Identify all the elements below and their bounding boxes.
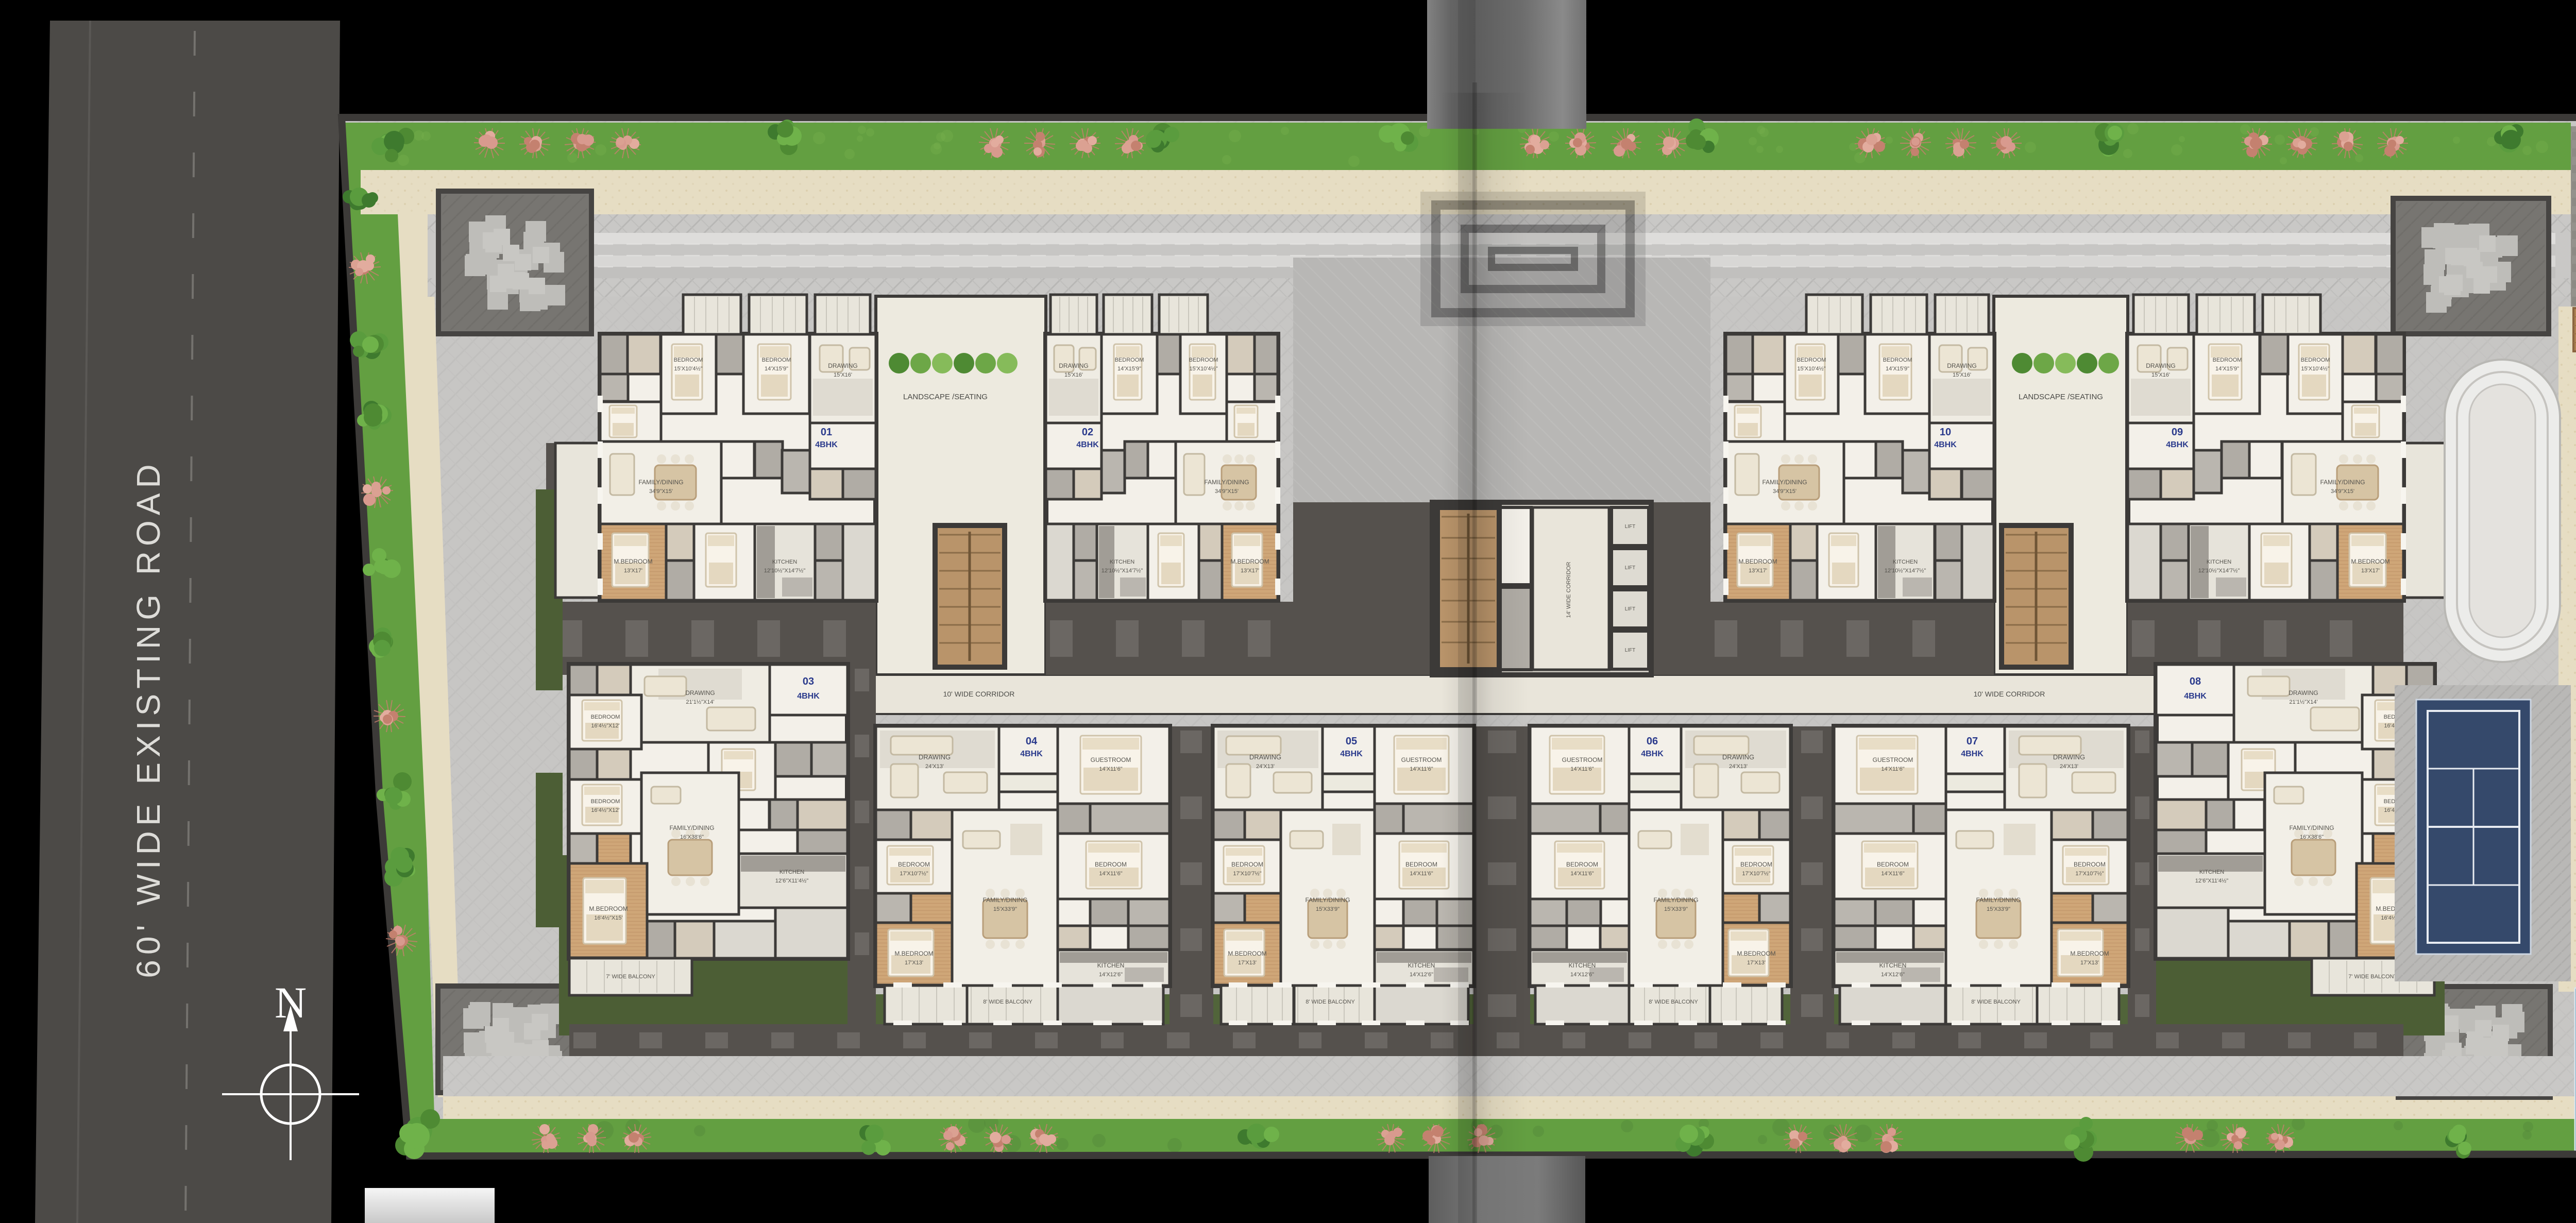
svg-text:17'X10'7½": 17'X10'7½" xyxy=(1742,871,1770,877)
svg-text:15'X33'9": 15'X33'9" xyxy=(993,906,1017,912)
svg-text:FAMILY/DINING: FAMILY/DINING xyxy=(1762,479,1807,486)
svg-text:LIFT: LIFT xyxy=(1625,565,1636,571)
svg-text:KITCHEN: KITCHEN xyxy=(1408,962,1435,969)
svg-text:4BHK: 4BHK xyxy=(815,440,838,449)
svg-text:LANDSCAPE /SEATING: LANDSCAPE /SEATING xyxy=(903,393,988,401)
svg-text:05: 05 xyxy=(1346,736,1357,747)
svg-text:14'X15'9": 14'X15'9" xyxy=(2215,366,2239,372)
svg-text:16'4½"X12': 16'4½"X12' xyxy=(591,807,619,813)
svg-text:14'X11'6": 14'X11'6" xyxy=(1881,871,1904,877)
svg-text:17'X13': 17'X13' xyxy=(2080,960,2099,966)
svg-text:15'X16': 15'X16' xyxy=(2151,372,2170,378)
svg-text:BEDROOM: BEDROOM xyxy=(1189,357,1218,363)
svg-text:15'X33'9": 15'X33'9" xyxy=(1987,906,2010,912)
svg-text:BEDROOM: BEDROOM xyxy=(2074,861,2106,868)
svg-text:BEDROOM: BEDROOM xyxy=(674,357,703,363)
svg-text:DRAWING: DRAWING xyxy=(2289,689,2318,697)
svg-text:BEDROOM: BEDROOM xyxy=(2301,357,2330,363)
svg-text:24'X13': 24'X13' xyxy=(1256,763,1275,770)
svg-text:BEDROOM: BEDROOM xyxy=(898,861,930,868)
svg-text:DRAWING: DRAWING xyxy=(1947,362,1977,369)
svg-text:M.BEDROOM: M.BEDROOM xyxy=(589,905,628,912)
svg-text:KITCHEN: KITCHEN xyxy=(772,559,797,565)
svg-text:14'X12'6": 14'X12'6" xyxy=(1099,972,1123,978)
svg-text:KITCHEN: KITCHEN xyxy=(1569,962,1596,969)
svg-text:15'X10'4½": 15'X10'4½" xyxy=(2301,366,2329,372)
svg-text:14'X15'9": 14'X15'9" xyxy=(1886,366,1909,372)
svg-text:15'X10'4½": 15'X10'4½" xyxy=(674,366,702,372)
svg-text:M.BEDROOM: M.BEDROOM xyxy=(1737,950,1775,957)
svg-text:M.BEDROOM: M.BEDROOM xyxy=(2351,558,2389,565)
svg-text:M.BEDROOM: M.BEDROOM xyxy=(2070,950,2109,957)
svg-text:14'X12'6": 14'X12'6" xyxy=(1570,972,1594,978)
svg-text:M.BEDROOM: M.BEDROOM xyxy=(1738,558,1777,565)
svg-text:14'X15'9": 14'X15'9" xyxy=(1117,366,1141,372)
svg-text:DRAWING: DRAWING xyxy=(919,753,951,761)
svg-text:17'X13': 17'X13' xyxy=(1747,960,1766,966)
svg-text:15'X10'4½": 15'X10'4½" xyxy=(1189,366,1217,372)
svg-text:09: 09 xyxy=(2172,427,2183,438)
svg-text:KITCHEN: KITCHEN xyxy=(1893,559,1918,565)
svg-text:12'10½"X14'7½": 12'10½"X14'7½" xyxy=(1101,568,1143,574)
svg-text:DRAWING: DRAWING xyxy=(1249,753,1281,761)
svg-text:M.BEDROOM: M.BEDROOM xyxy=(894,950,933,957)
svg-text:12'10½"X14'7½": 12'10½"X14'7½" xyxy=(2198,568,2240,574)
svg-text:01: 01 xyxy=(821,427,832,438)
svg-text:34'9"X15': 34'9"X15' xyxy=(2331,488,2354,495)
svg-text:7' WIDE BALCONY: 7' WIDE BALCONY xyxy=(2348,974,2398,980)
svg-text:BEDROOM: BEDROOM xyxy=(1883,357,1912,363)
svg-text:4BHK: 4BHK xyxy=(2184,692,2207,701)
svg-text:DRAWING: DRAWING xyxy=(685,689,715,697)
svg-text:M.BEDROOM: M.BEDROOM xyxy=(1230,558,1269,565)
svg-text:FAMILY/DINING: FAMILY/DINING xyxy=(638,479,683,486)
svg-text:10: 10 xyxy=(1940,427,1951,438)
svg-text:14'X11'6": 14'X11'6" xyxy=(1410,766,1433,772)
svg-text:14'X11'6": 14'X11'6" xyxy=(1570,871,1594,877)
svg-text:DRAWING: DRAWING xyxy=(2053,753,2085,761)
svg-text:7' WIDE BALCONY: 7' WIDE BALCONY xyxy=(606,974,655,980)
svg-text:8' WIDE BALCONY: 8' WIDE BALCONY xyxy=(1649,999,1698,1005)
svg-text:BEDROOM: BEDROOM xyxy=(1231,861,1263,868)
svg-text:17'X10'7½": 17'X10'7½" xyxy=(2075,871,2104,877)
svg-text:4BHK: 4BHK xyxy=(1340,750,1363,758)
svg-text:BEDROOM: BEDROOM xyxy=(2213,357,2242,363)
svg-text:14' WIDE CORRIDOR: 14' WIDE CORRIDOR xyxy=(1566,562,1572,618)
svg-text:06: 06 xyxy=(1647,736,1658,747)
svg-text:FAMILY/DINING: FAMILY/DINING xyxy=(2289,824,2334,831)
svg-text:17'X10'7½": 17'X10'7½" xyxy=(900,871,928,877)
svg-text:4BHK: 4BHK xyxy=(1641,750,1664,758)
svg-text:BEDROOM: BEDROOM xyxy=(1115,357,1144,363)
svg-text:17'X13': 17'X13' xyxy=(1238,960,1257,966)
svg-text:15'X10'4½": 15'X10'4½" xyxy=(1797,366,1825,372)
svg-text:BEDROOM: BEDROOM xyxy=(1797,357,1826,363)
svg-text:DRAWING: DRAWING xyxy=(828,362,858,369)
svg-text:8' WIDE BALCONY: 8' WIDE BALCONY xyxy=(1306,999,1355,1005)
svg-text:BEDROOM: BEDROOM xyxy=(1877,861,1909,868)
svg-text:14'X11'6": 14'X11'6" xyxy=(1570,766,1594,772)
svg-text:BEDROOM: BEDROOM xyxy=(1405,861,1437,868)
svg-text:14'X11'6": 14'X11'6" xyxy=(1099,871,1122,877)
svg-text:BEDROOM: BEDROOM xyxy=(1095,861,1127,868)
svg-text:15'X16': 15'X16' xyxy=(1953,372,1971,378)
svg-text:DRAWING: DRAWING xyxy=(1722,753,1754,761)
svg-text:4BHK: 4BHK xyxy=(2166,440,2189,449)
svg-text:34'9"X15': 34'9"X15' xyxy=(649,488,673,495)
svg-text:03: 03 xyxy=(803,676,814,687)
svg-text:17'X10'7½": 17'X10'7½" xyxy=(1233,871,1261,877)
svg-text:8' WIDE BALCONY: 8' WIDE BALCONY xyxy=(983,999,1032,1005)
svg-text:12'10½"X14'7½": 12'10½"X14'7½" xyxy=(1885,568,1926,574)
svg-text:13'X17': 13'X17' xyxy=(2361,568,2380,574)
svg-text:FAMILY/DINING: FAMILY/DINING xyxy=(982,896,1027,904)
svg-text:FAMILY/DINING: FAMILY/DINING xyxy=(1204,479,1249,486)
svg-text:14'X15'9": 14'X15'9" xyxy=(765,366,788,372)
svg-text:M.BEDROOM: M.BEDROOM xyxy=(1228,950,1266,957)
svg-text:16'4½"X15': 16'4½"X15' xyxy=(594,915,622,921)
svg-text:FAMILY/DINING: FAMILY/DINING xyxy=(1976,896,2021,904)
svg-text:14'X12'6": 14'X12'6" xyxy=(1881,972,1905,978)
svg-text:17'X13': 17'X13' xyxy=(905,960,923,966)
svg-text:12'10½"X14'7½": 12'10½"X14'7½" xyxy=(764,568,806,574)
svg-text:14'X12'6": 14'X12'6" xyxy=(1410,972,1433,978)
svg-text:21'1½"X14': 21'1½"X14' xyxy=(2289,699,2317,705)
svg-text:FAMILY/DINING: FAMILY/DINING xyxy=(669,824,714,831)
svg-text:10' WIDE CORRIDOR: 10' WIDE CORRIDOR xyxy=(943,690,1015,698)
svg-text:24'X13': 24'X13' xyxy=(2060,763,2078,770)
svg-text:LIFT: LIFT xyxy=(1625,524,1636,530)
svg-text:M.BEDROOM: M.BEDROOM xyxy=(614,558,652,565)
svg-text:21'1½"X14': 21'1½"X14' xyxy=(686,699,714,705)
svg-text:FAMILY/DINING: FAMILY/DINING xyxy=(1653,896,1698,904)
svg-text:KITCHEN: KITCHEN xyxy=(2199,869,2224,875)
svg-text:4BHK: 4BHK xyxy=(1020,750,1043,758)
svg-text:16'4½"X12': 16'4½"X12' xyxy=(591,723,619,729)
svg-text:16'X38'6": 16'X38'6" xyxy=(680,834,704,840)
svg-text:15'X33'9": 15'X33'9" xyxy=(1316,906,1340,912)
svg-text:4BHK: 4BHK xyxy=(797,692,820,701)
svg-text:LIFT: LIFT xyxy=(1625,648,1636,653)
svg-text:15'X16': 15'X16' xyxy=(834,372,852,378)
svg-text:24'X13': 24'X13' xyxy=(925,763,944,770)
svg-text:GUESTROOM: GUESTROOM xyxy=(1401,756,1442,763)
svg-text:34'9"X15': 34'9"X15' xyxy=(1773,488,1797,495)
svg-text:07: 07 xyxy=(1967,736,1978,747)
svg-text:12'6"X11'4½": 12'6"X11'4½" xyxy=(2195,878,2229,884)
svg-text:BEDROOM: BEDROOM xyxy=(591,714,620,720)
svg-text:8' WIDE BALCONY: 8' WIDE BALCONY xyxy=(1971,999,2021,1005)
svg-text:60' WIDE EXISTING ROAD: 60' WIDE EXISTING ROAD xyxy=(130,459,167,978)
svg-text:LANDSCAPE /SEATING: LANDSCAPE /SEATING xyxy=(2019,393,2103,401)
svg-text:13'X17': 13'X17' xyxy=(1749,568,1767,574)
svg-text:04: 04 xyxy=(1026,736,1038,747)
svg-text:BEDROOM: BEDROOM xyxy=(762,357,791,363)
svg-text:BEDROOM: BEDROOM xyxy=(1740,861,1772,868)
svg-text:GUESTROOM: GUESTROOM xyxy=(1091,756,1131,763)
svg-text:12'6"X11'4½": 12'6"X11'4½" xyxy=(775,878,809,884)
svg-text:4BHK: 4BHK xyxy=(1961,750,1984,758)
svg-text:13'X17': 13'X17' xyxy=(624,568,642,574)
svg-text:BEDROOM: BEDROOM xyxy=(591,799,620,805)
svg-text:15'X16': 15'X16' xyxy=(1064,372,1083,378)
svg-text:KITCHEN: KITCHEN xyxy=(1879,962,1907,969)
svg-text:08: 08 xyxy=(2190,676,2201,687)
svg-text:LIFT: LIFT xyxy=(1625,606,1636,612)
svg-text:4BHK: 4BHK xyxy=(1076,440,1099,449)
svg-text:GUESTROOM: GUESTROOM xyxy=(1562,756,1603,763)
svg-text:34'9"X15': 34'9"X15' xyxy=(1215,488,1239,495)
svg-text:02: 02 xyxy=(1082,427,1093,438)
svg-text:10' WIDE CORRIDOR: 10' WIDE CORRIDOR xyxy=(1974,690,2045,698)
svg-text:DRAWING: DRAWING xyxy=(1059,362,1089,369)
svg-text:24'X13': 24'X13' xyxy=(1729,763,1748,770)
svg-text:14'X11'6": 14'X11'6" xyxy=(1881,766,1904,772)
svg-text:15'X33'9": 15'X33'9" xyxy=(1664,906,1688,912)
svg-text:4BHK: 4BHK xyxy=(1934,440,1957,449)
svg-text:GUESTROOM: GUESTROOM xyxy=(1873,756,1913,763)
svg-text:N: N xyxy=(275,978,307,1027)
svg-text:KITCHEN: KITCHEN xyxy=(2207,559,2231,565)
svg-text:KITCHEN: KITCHEN xyxy=(779,869,804,875)
svg-text:14'X11'6": 14'X11'6" xyxy=(1410,871,1433,877)
svg-text:KITCHEN: KITCHEN xyxy=(1097,962,1125,969)
svg-text:13'X17': 13'X17' xyxy=(1241,568,1259,574)
svg-text:BEDROOM: BEDROOM xyxy=(1566,861,1598,868)
svg-text:KITCHEN: KITCHEN xyxy=(1110,559,1134,565)
svg-text:FAMILY/DINING: FAMILY/DINING xyxy=(2320,479,2365,486)
svg-text:16'X38'6": 16'X38'6" xyxy=(2300,834,2324,840)
svg-text:FAMILY/DINING: FAMILY/DINING xyxy=(1305,896,1350,904)
svg-text:14'X11'6": 14'X11'6" xyxy=(1099,766,1122,772)
svg-text:DRAWING: DRAWING xyxy=(2146,362,2176,369)
